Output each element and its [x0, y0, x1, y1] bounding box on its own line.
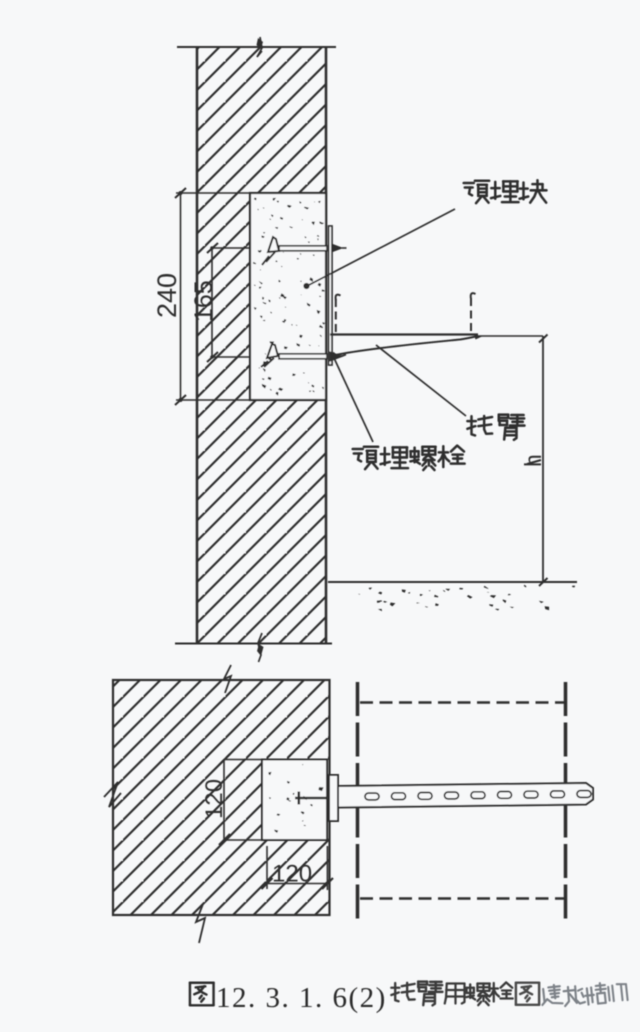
svg-text:h: h	[520, 454, 546, 467]
svg-text:165: 165	[190, 280, 218, 322]
svg-text:120: 120	[272, 861, 312, 888]
svg-text:240: 240	[152, 273, 182, 318]
svg-text:120: 120	[201, 779, 228, 819]
svg-text:12. 3. 1. 6(2): 12. 3. 1. 6(2)	[216, 982, 387, 1014]
